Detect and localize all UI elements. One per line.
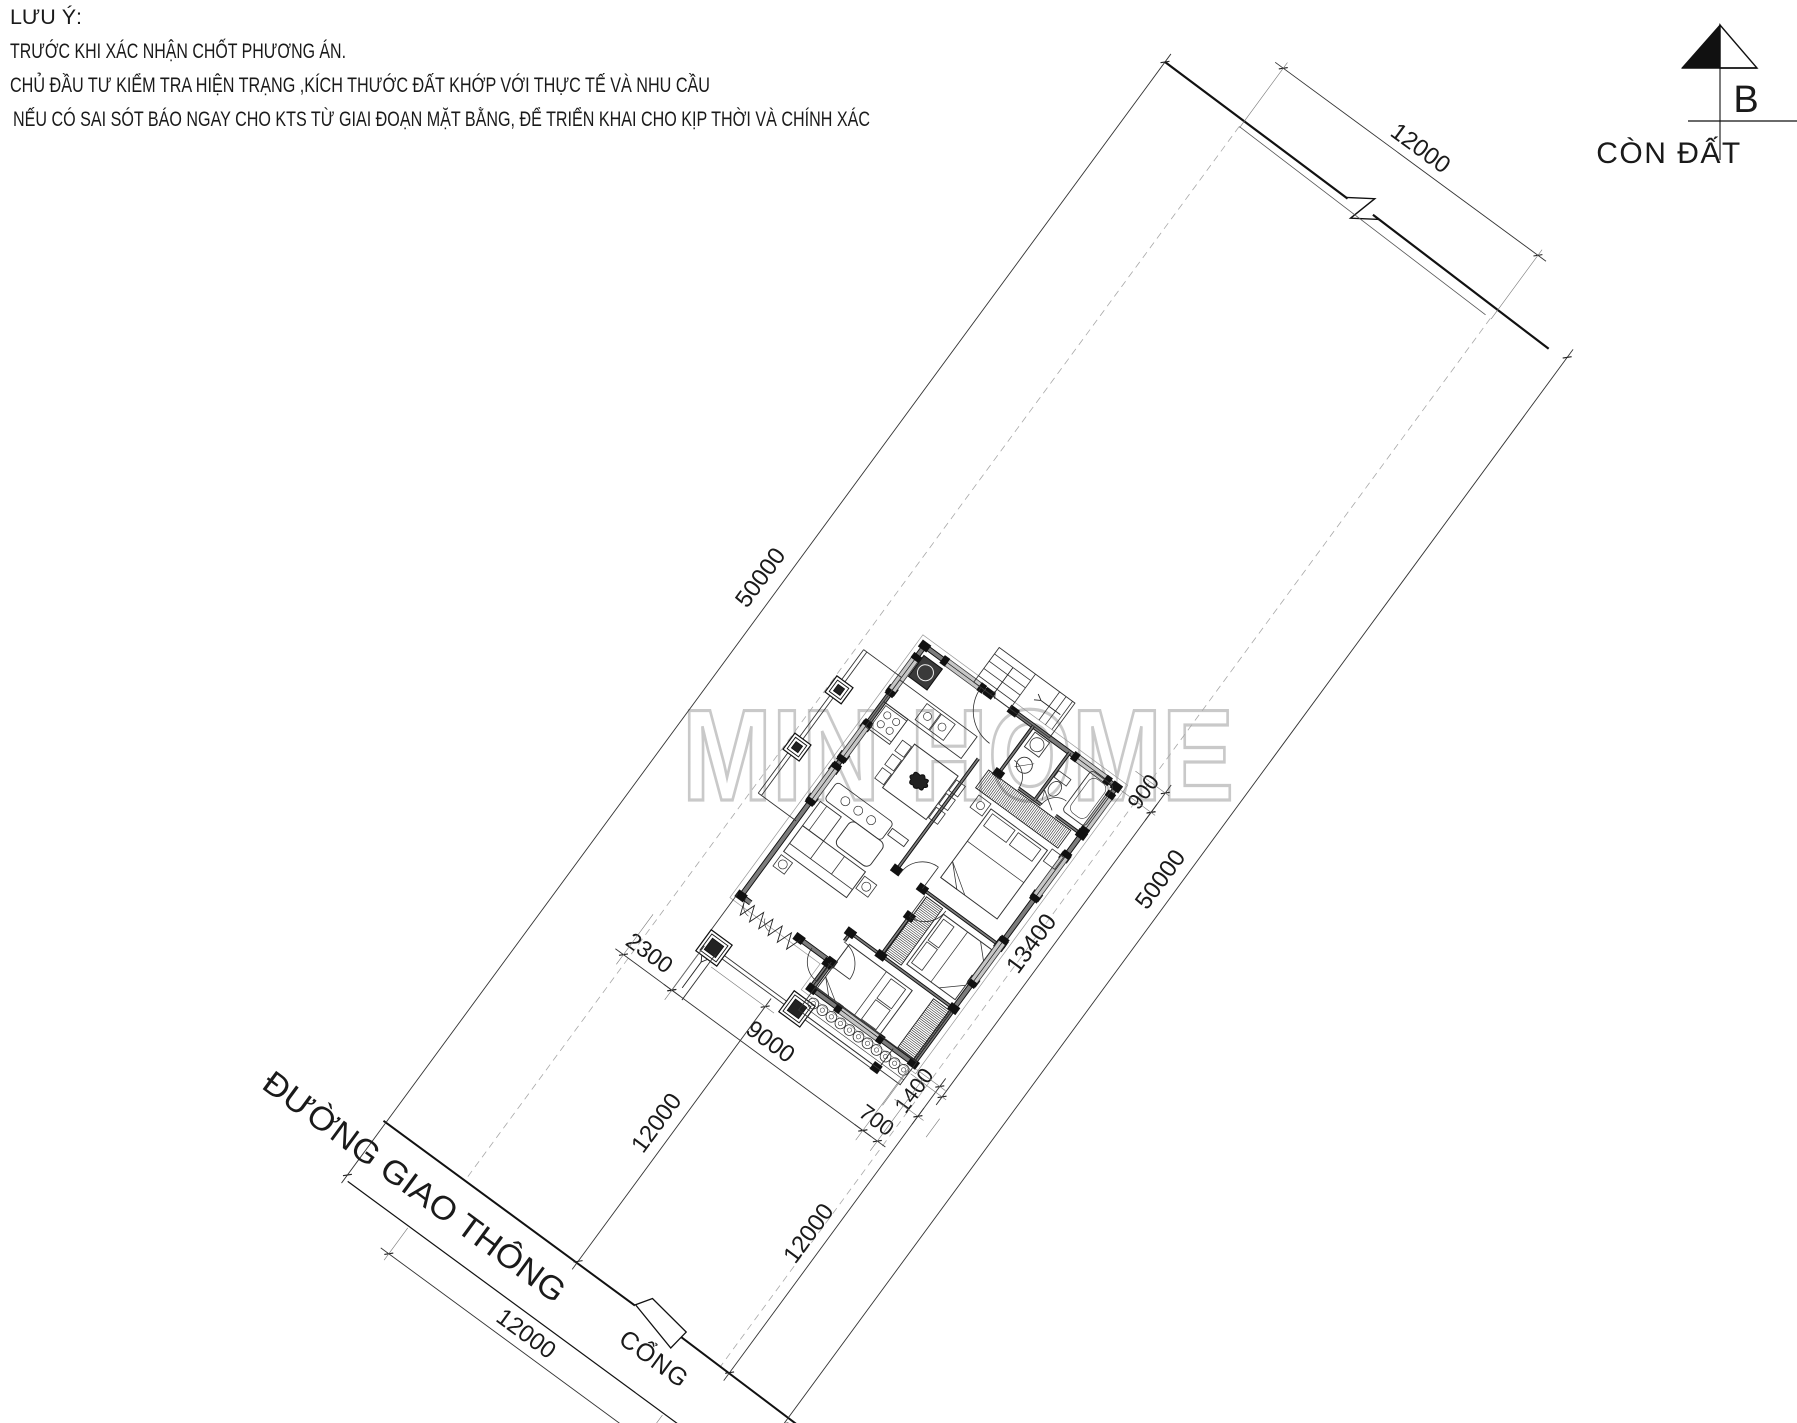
svg-text:LƯU Ý:: LƯU Ý: xyxy=(10,6,82,29)
svg-text:12000: 12000 xyxy=(1385,118,1455,179)
svg-text:13400: 13400 xyxy=(1001,909,1062,979)
svg-text:MIN HOME: MIN HOME xyxy=(682,682,1234,828)
svg-text:12000: 12000 xyxy=(626,1088,687,1158)
svg-text:50000: 50000 xyxy=(730,543,791,613)
svg-text:1400: 1400 xyxy=(889,1063,938,1117)
svg-text:2300: 2300 xyxy=(621,927,678,978)
svg-text:12000: 12000 xyxy=(778,1199,839,1269)
svg-text:NẾU CÓ SAI SÓT BÁO NGAY CHO KT: NẾU CÓ SAI SÓT BÁO NGAY CHO KTS TỪ GIAI … xyxy=(13,107,870,131)
svg-text:CÒN ĐẤT: CÒN ĐẤT xyxy=(1596,136,1742,170)
svg-text:B: B xyxy=(1733,79,1758,121)
svg-text:TRƯỚC KHI XÁC NHẬN CHỐT PHƯƠNG: TRƯỚC KHI XÁC NHẬN CHỐT PHƯƠNG ÁN. xyxy=(10,39,346,63)
svg-text:9000: 9000 xyxy=(741,1015,800,1068)
svg-text:CHỦ ĐẦU TƯ KIỂM TRA HIỆN TRẠNG: CHỦ ĐẦU TƯ KIỂM TRA HIỆN TRẠNG ,KÍCH THƯ… xyxy=(10,73,710,97)
svg-text:50000: 50000 xyxy=(1130,845,1191,915)
